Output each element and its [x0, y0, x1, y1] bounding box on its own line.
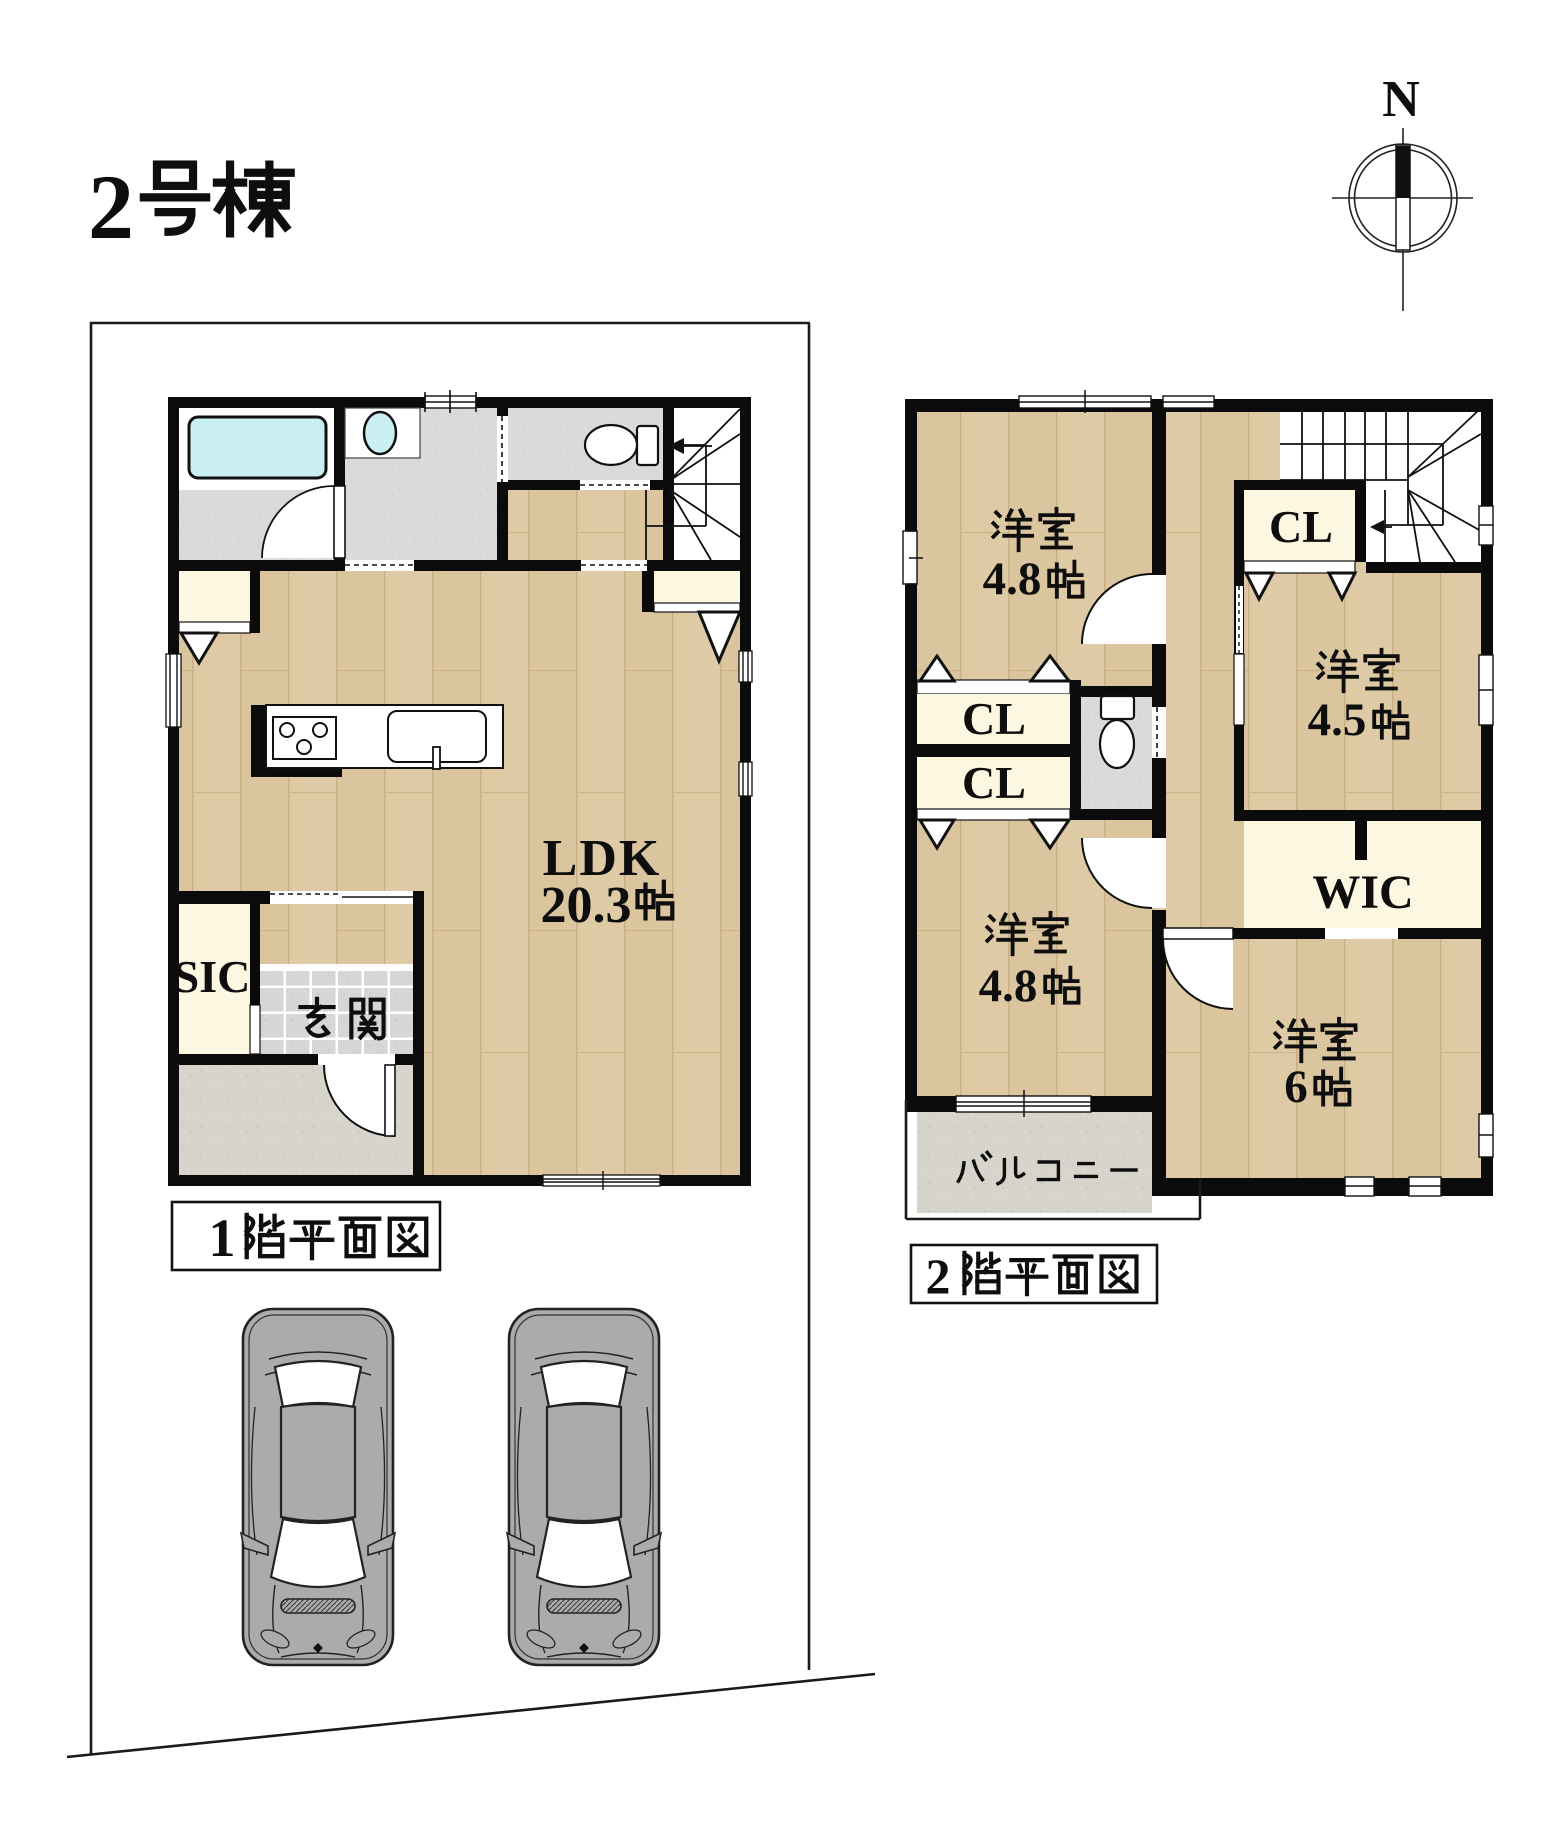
svg-text:4.8: 4.8	[983, 553, 1042, 605]
svg-text:CL: CL	[962, 757, 1026, 808]
svg-text:N: N	[1382, 71, 1420, 128]
svg-text:WIC: WIC	[1312, 866, 1413, 919]
svg-text:20.3: 20.3	[541, 877, 632, 934]
svg-text:CL: CL	[1269, 501, 1333, 552]
svg-text:4.5: 4.5	[1308, 694, 1367, 746]
svg-text:SIC: SIC	[174, 951, 251, 1002]
svg-text:6: 6	[1284, 1061, 1308, 1113]
svg-text:1: 1	[209, 1208, 236, 1268]
svg-text:CL: CL	[962, 693, 1026, 744]
svg-text:2: 2	[926, 1248, 951, 1304]
svg-text:2: 2	[88, 156, 134, 258]
svg-text:4.8: 4.8	[979, 960, 1038, 1012]
